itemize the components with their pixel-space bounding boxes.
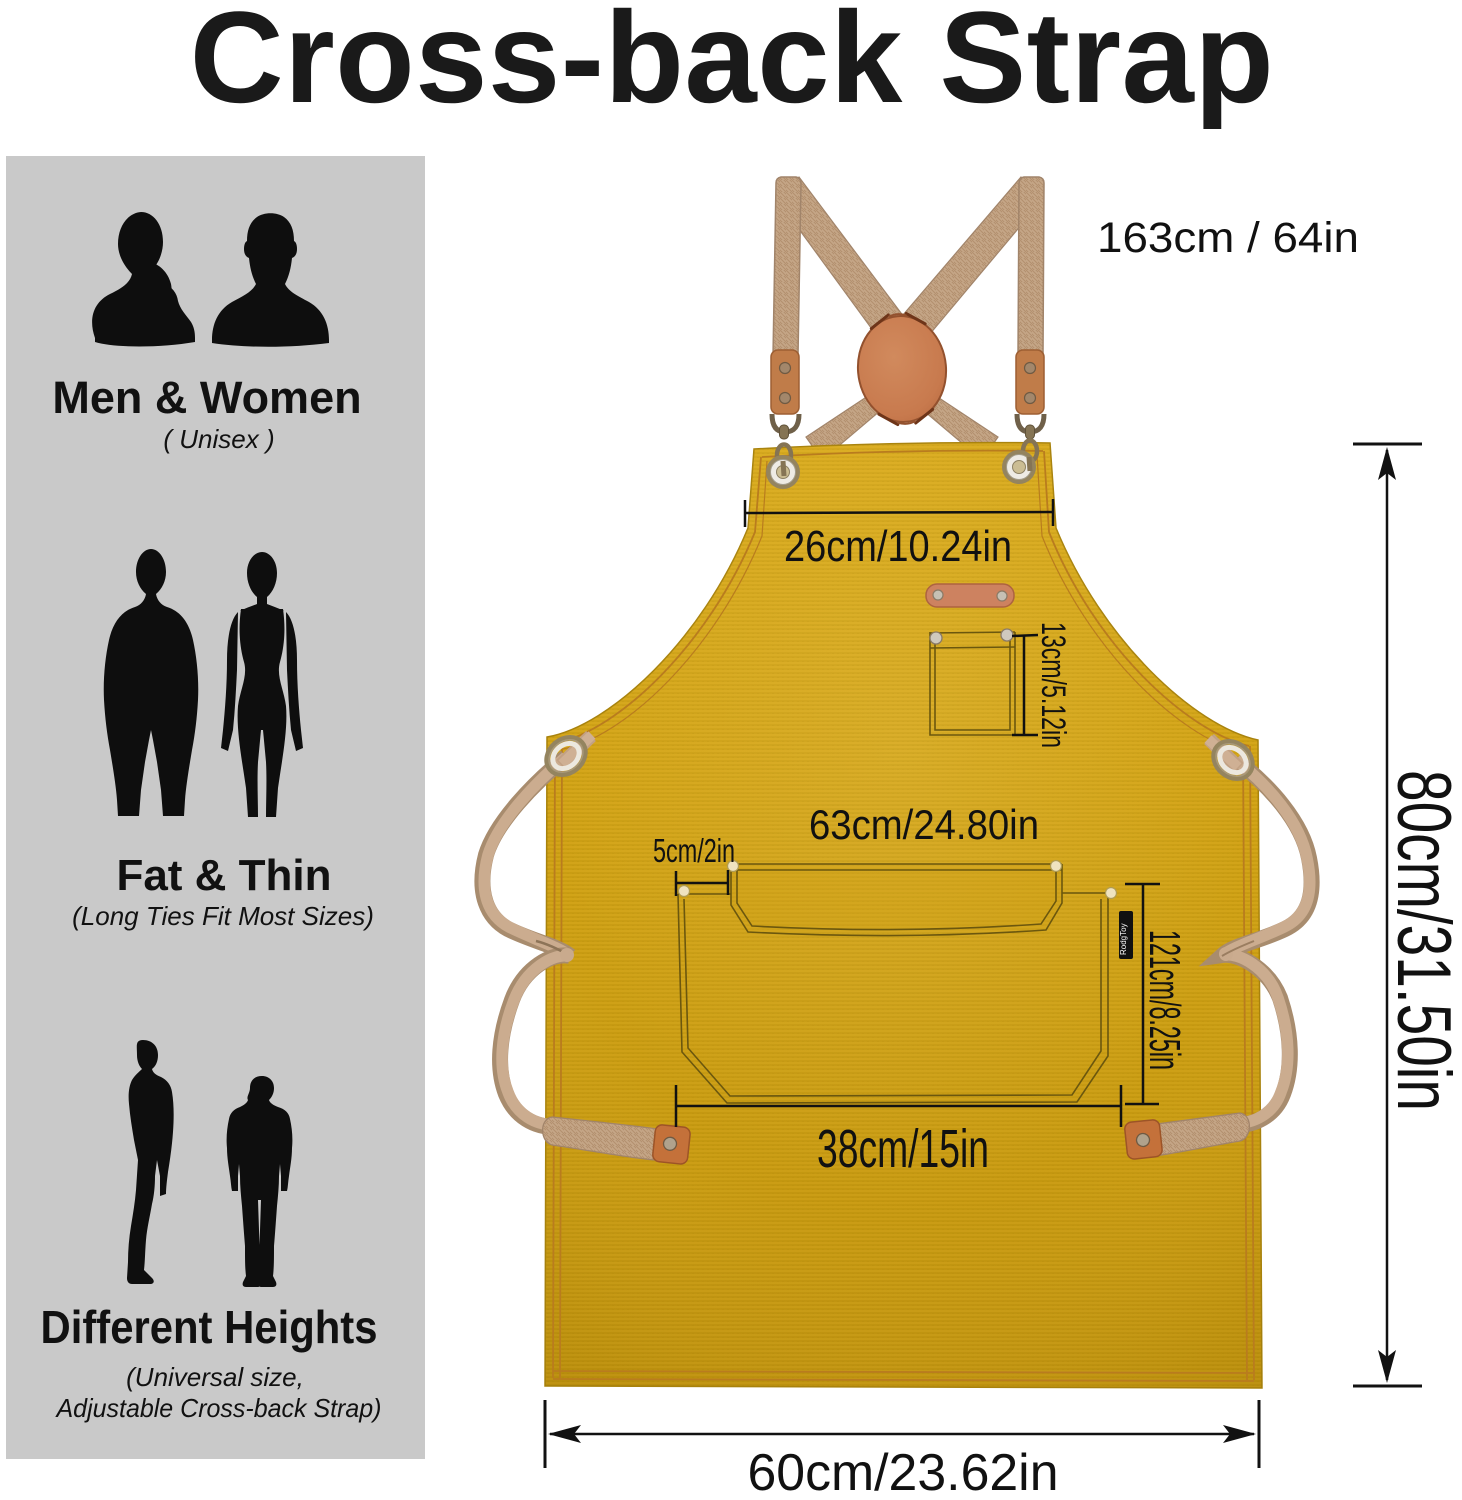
svg-text:121cm/8.25in: 121cm/8.25in	[1140, 930, 1189, 1070]
svg-text:Cross-back Strap: Cross-back Strap	[190, 0, 1275, 130]
svg-text:60cm/23.62in: 60cm/23.62in	[748, 1444, 1059, 1500]
svg-text:Fat & Thin: Fat & Thin	[116, 851, 331, 900]
svg-text:80cm/31.50in: 80cm/31.50in	[1381, 770, 1462, 1111]
svg-text:63cm/24.80in: 63cm/24.80in	[809, 801, 1039, 848]
svg-text:5cm/2in: 5cm/2in	[653, 832, 735, 869]
svg-text:163cm / 64in: 163cm / 64in	[1097, 214, 1359, 262]
svg-text:13cm/5.12in: 13cm/5.12in	[1034, 622, 1072, 748]
svg-text:(Long Ties Fit Most Sizes): (Long Ties Fit Most Sizes)	[72, 901, 374, 931]
svg-text:Adjustable Cross-back Strap): Adjustable Cross-back Strap)	[55, 1393, 382, 1423]
svg-text:Different Heights: Different Heights	[41, 1301, 378, 1353]
svg-text:(Universal size,: (Universal size,	[126, 1362, 304, 1392]
svg-text:Men & Women: Men & Women	[52, 372, 361, 423]
svg-text:( Unisex ): ( Unisex )	[163, 424, 274, 454]
svg-text:26cm/10.24in: 26cm/10.24in	[784, 522, 1012, 571]
svg-text:RodgToy: RodgToy	[1119, 923, 1128, 955]
svg-text:38cm/15in: 38cm/15in	[817, 1119, 989, 1179]
